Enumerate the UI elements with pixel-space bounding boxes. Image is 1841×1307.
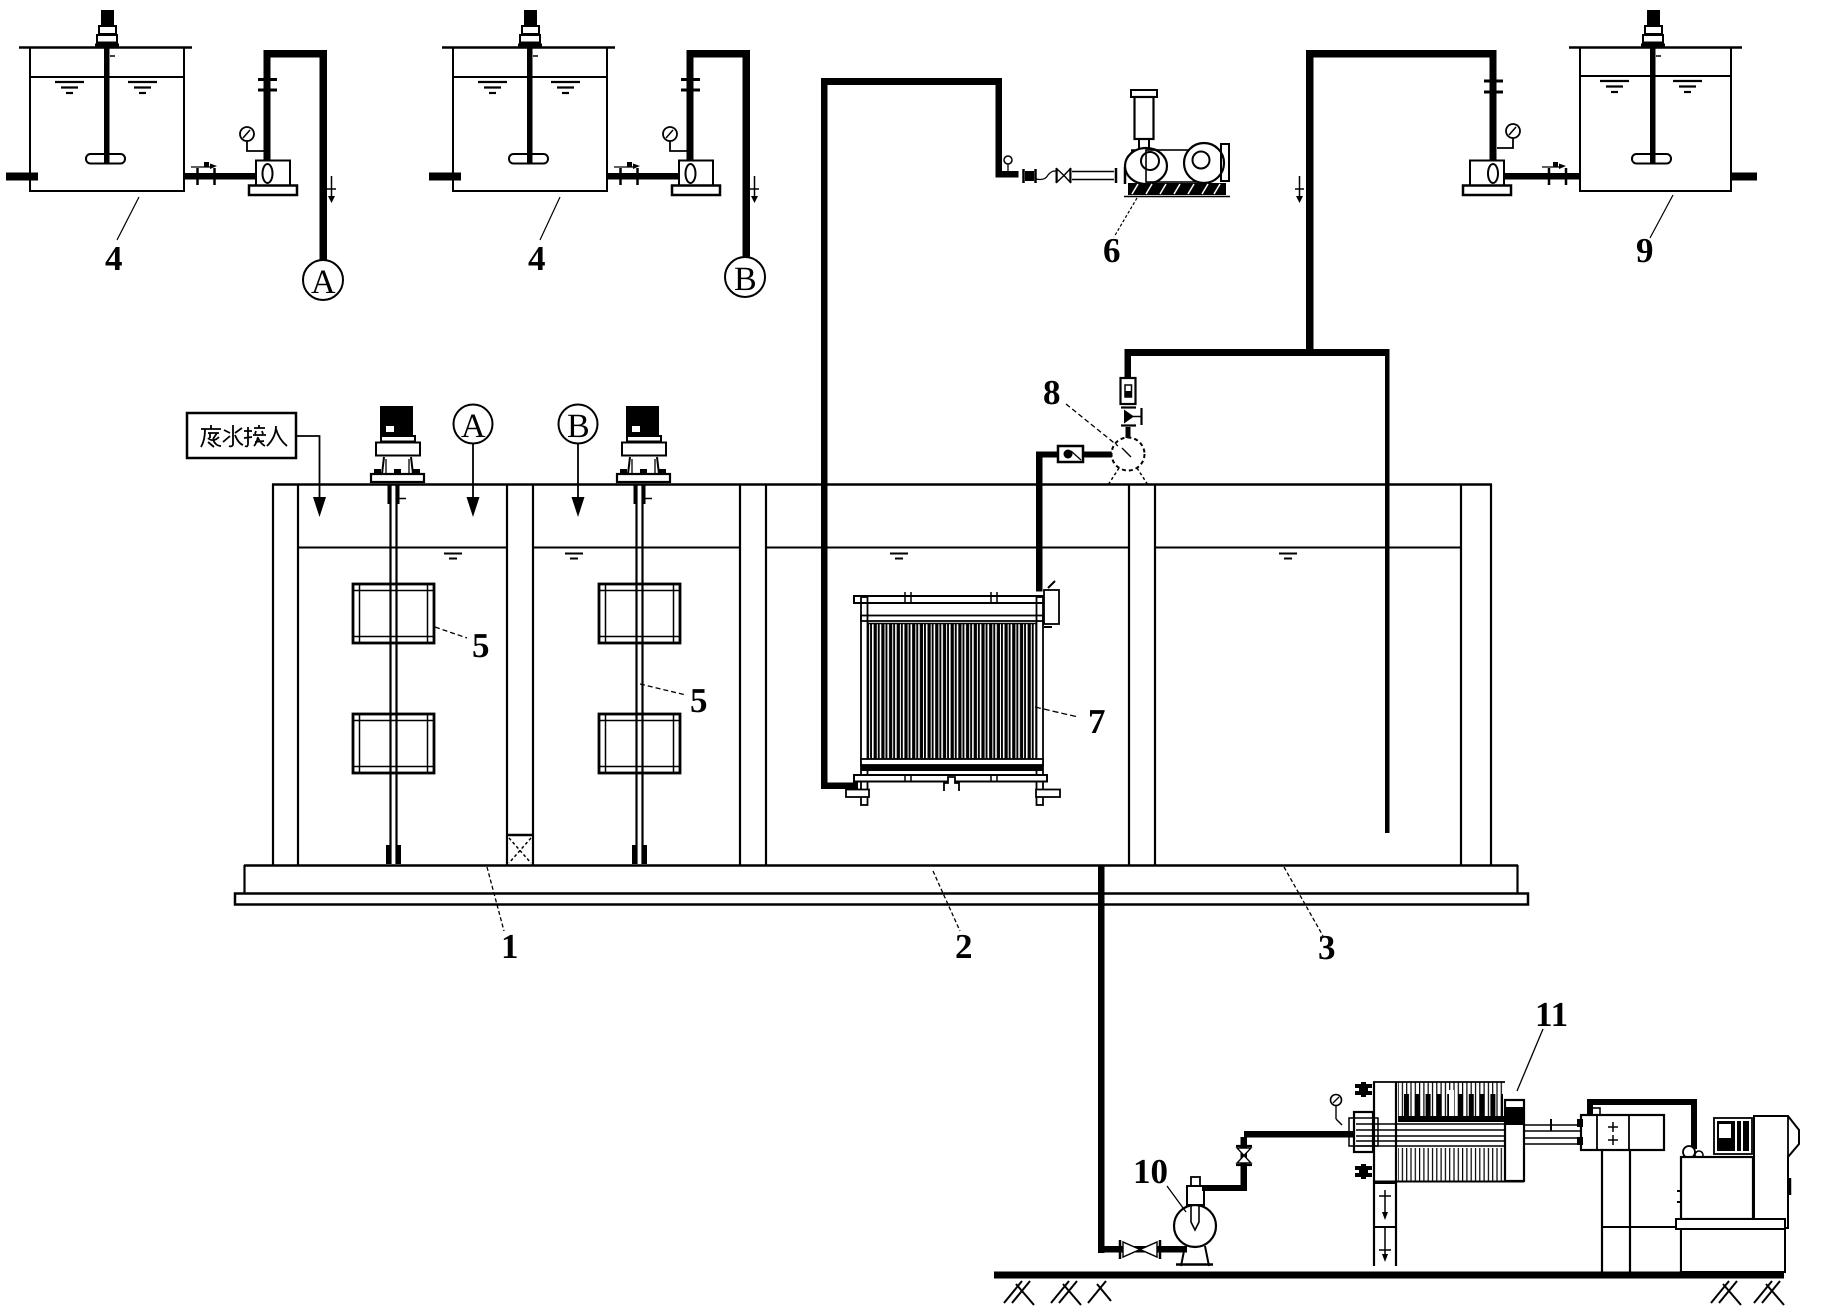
svg-text:4: 4 [105, 239, 123, 278]
svg-text:5: 5 [690, 681, 708, 720]
svg-text:5: 5 [472, 626, 490, 665]
svg-text:A: A [311, 264, 336, 301]
svg-text:B: B [567, 408, 590, 445]
svg-text:4: 4 [528, 239, 546, 278]
svg-text:A: A [461, 408, 486, 445]
svg-text:B: B [734, 261, 757, 298]
svg-text:8: 8 [1043, 373, 1061, 412]
svg-text:7: 7 [1088, 702, 1106, 741]
svg-text:2: 2 [955, 927, 973, 966]
svg-text:9: 9 [1636, 231, 1654, 270]
svg-text:10: 10 [1133, 1152, 1168, 1191]
svg-text:6: 6 [1103, 231, 1121, 270]
svg-text:1: 1 [501, 927, 519, 966]
svg-text:3: 3 [1318, 928, 1336, 967]
svg-text:11: 11 [1535, 995, 1568, 1034]
